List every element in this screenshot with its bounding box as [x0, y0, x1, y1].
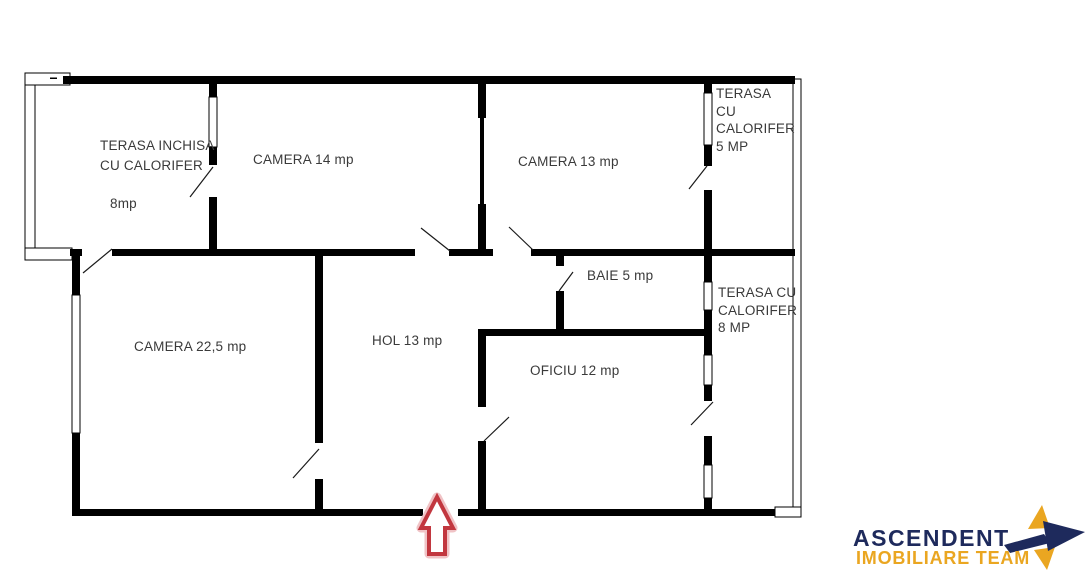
room-label-hol: HOL 13 mp [372, 331, 442, 351]
room-area-terasa-inchisa: 8mp [110, 194, 137, 214]
door-swings [83, 166, 713, 478]
room-label-baie: BAIE 5 mp [587, 266, 653, 286]
floorplan-drawing [0, 0, 1085, 573]
room-label-camera-22-5: CAMERA 22,5 mp [134, 337, 246, 357]
floorplan-canvas: TERASA INCHISA CU CALORIFER 8mp CAMERA 1… [0, 0, 1085, 573]
room-label-line: CU [716, 103, 795, 121]
brand-tagline: IMOBILIARE TEAM [856, 548, 1030, 569]
room-label-line: CALORIFER [716, 120, 795, 138]
room-label-oficiu: OFICIU 12 mp [530, 361, 619, 381]
room-label-camera-13: CAMERA 13 mp [518, 152, 619, 172]
room-label-line: 5 MP [716, 138, 795, 156]
room-label-line: TERASA CU [718, 284, 797, 302]
entrance-arrow-icon [421, 497, 453, 554]
room-label-terasa-5: TERASA CU CALORIFER 5 MP [716, 85, 795, 155]
room-label-line: 8 MP [718, 319, 797, 337]
room-label-line: CU CALORIFER [100, 156, 215, 176]
room-label-line: TERASA INCHISA [100, 136, 215, 156]
room-label-terasa-8: TERASA CU CALORIFER 8 MP [718, 284, 797, 337]
room-label-line: CALORIFER [718, 302, 797, 320]
room-label-camera-14: CAMERA 14 mp [253, 150, 354, 170]
room-label-line: TERASA [716, 85, 795, 103]
room-label-terasa-inchisa: TERASA INCHISA CU CALORIFER [100, 136, 215, 176]
